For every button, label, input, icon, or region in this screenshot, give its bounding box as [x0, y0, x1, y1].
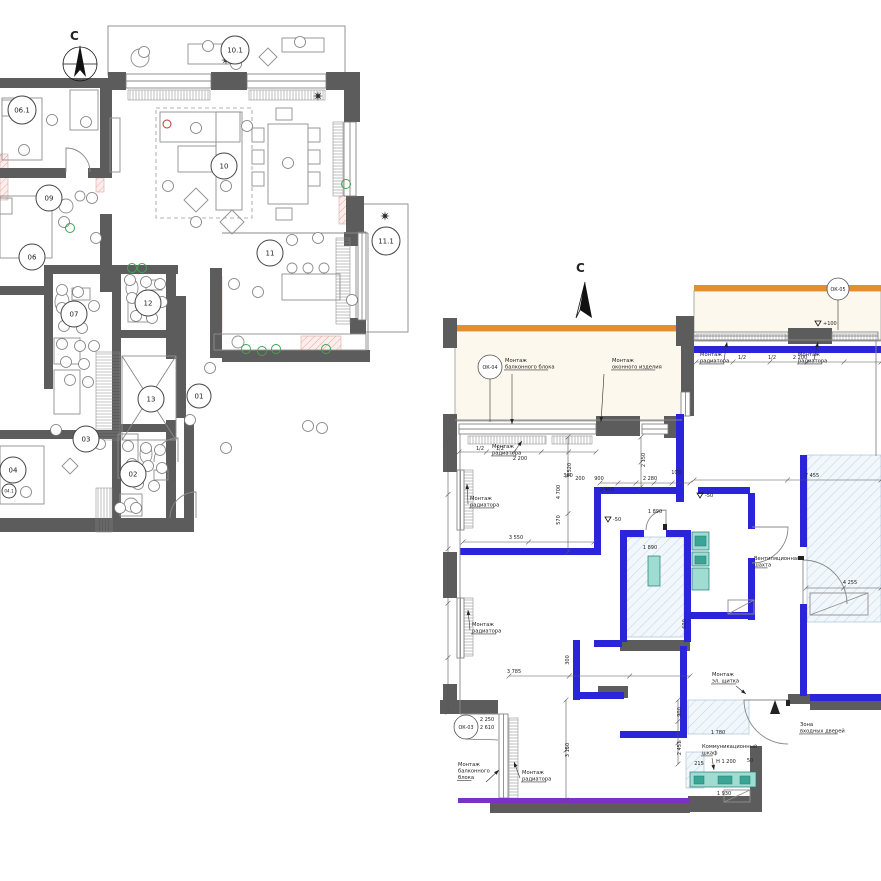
furniture-callout-circle	[139, 47, 150, 58]
furniture-callout-circle	[65, 375, 76, 386]
new-partition-wall	[620, 530, 644, 537]
dimension-label: Н 1 200	[716, 759, 736, 765]
dimension-label: 1 890	[648, 509, 662, 515]
plumbing-fixture	[692, 568, 709, 590]
dimension-label: 200	[575, 476, 585, 482]
new-partition-wall	[810, 694, 881, 701]
room-number-label: 11	[266, 250, 275, 258]
north-label: С	[576, 261, 585, 275]
dimension-label: 50	[747, 758, 753, 764]
entry-direction-arrow	[770, 700, 780, 714]
annotation-text: Зона	[800, 722, 813, 728]
furniture-callout-circle	[131, 503, 142, 514]
annotation-text: Монтаж	[712, 672, 734, 678]
annotation-text: Монтаж	[505, 358, 527, 364]
dimension-label: 1 890	[643, 545, 657, 551]
annotation-text: Монтаж	[798, 352, 820, 358]
floorplan-page: 06.10910.1101111.10607121301030404.102 2…	[0, 0, 881, 881]
furniture-callout-circle	[141, 443, 152, 454]
pink-hatch	[96, 178, 104, 192]
furniture	[276, 208, 292, 220]
dimension-label: 2 610	[480, 725, 494, 731]
radiator-comb	[336, 238, 350, 324]
wall-segment	[118, 330, 178, 338]
furniture-callout-circle	[79, 359, 90, 370]
annotation-text: радиатора	[472, 628, 501, 634]
room-number-label: 09	[45, 195, 54, 203]
furniture-callout-circle	[155, 279, 166, 290]
furniture-callout-circle	[191, 217, 202, 228]
wall-segment	[44, 265, 178, 274]
furniture-callout-circle	[317, 423, 328, 434]
wall-segment	[0, 286, 44, 295]
new-partition-wall	[748, 493, 755, 529]
annotation-text: радиатора	[700, 358, 729, 364]
furniture-callout-circle	[283, 158, 294, 169]
floorplan-canvas: 06.10910.1101111.10607121301030404.102 2…	[0, 0, 881, 881]
dimension-label: 1/2	[738, 355, 746, 361]
room-number-label: 13	[147, 396, 156, 404]
existing-wall	[440, 700, 498, 714]
existing-wall	[676, 316, 694, 346]
furniture-callout-circle	[73, 287, 84, 298]
dimension-label: 215	[694, 761, 704, 767]
green-mark-circle	[66, 224, 75, 233]
annotation-text: Коммуникационный	[702, 743, 757, 750]
new-partition-wall	[680, 646, 687, 738]
dimension-label: 4 700	[556, 485, 562, 499]
furniture-round	[303, 263, 313, 273]
armchair	[220, 210, 244, 234]
plumbing-fixture-inner	[695, 536, 706, 546]
annotation-text: балконного блока	[505, 364, 555, 370]
dimension-label: 2 250	[480, 717, 494, 723]
furniture-callout-circle	[57, 285, 68, 296]
new-partition-wall	[666, 530, 686, 537]
dimension-label: 2 450	[600, 487, 614, 493]
room-number-label: 01	[195, 393, 204, 401]
window-tag-label: ОК-05	[830, 287, 845, 293]
dimension-label: 1 780	[711, 730, 725, 736]
dimension-label: 1 930	[717, 791, 731, 797]
furniture-callout-circle	[205, 363, 216, 374]
furniture-callout-circle	[203, 41, 214, 52]
furniture-round	[75, 191, 85, 201]
room-number-label: 11.1	[378, 238, 394, 246]
window-tag-leader	[466, 739, 498, 740]
wall-segment	[44, 265, 53, 389]
leader-arrowhead	[510, 419, 514, 424]
orange-band	[694, 285, 881, 291]
dimension-label: 7 520	[567, 463, 573, 477]
furniture	[0, 198, 12, 214]
furniture-callout-circle	[125, 275, 136, 286]
annotation-text: оконного изделия	[612, 364, 662, 370]
furniture-callout-circle	[51, 425, 62, 436]
dimension-label: 1/2	[476, 446, 484, 452]
dimension-label: 600	[682, 619, 688, 629]
annotation-text: Монтаж	[522, 770, 544, 776]
new-partition-wall	[800, 604, 807, 696]
annotation-text: балконного	[458, 768, 490, 774]
furniture	[252, 150, 264, 164]
level-mark-flag	[605, 517, 611, 522]
existing-wall	[443, 414, 457, 472]
new-partition-wall	[594, 487, 601, 555]
existing-wall	[443, 318, 457, 348]
annotation-text: эл. щитка	[712, 678, 739, 684]
room-number-label: 04	[9, 467, 18, 475]
furniture-callout-circle	[185, 415, 196, 426]
new-partition-wall	[594, 640, 622, 647]
annotation-text: шахта	[754, 562, 771, 568]
wall-segment	[0, 168, 66, 178]
annotation-text: Монтаж	[458, 762, 480, 768]
new-partition-wall	[800, 455, 807, 547]
room-number-label: 07	[70, 311, 79, 319]
furniture-callout-circle	[221, 443, 232, 454]
wall-segment	[108, 72, 126, 90]
room-number-label: 10	[220, 163, 229, 171]
room-number-label: 02	[129, 471, 138, 479]
plant-icon	[313, 91, 323, 101]
new-partition-wall	[694, 346, 881, 353]
new-partition-wall	[620, 731, 682, 738]
room-number-label: 12	[144, 300, 153, 308]
room-number-label: 06	[28, 254, 37, 262]
furniture-callout-circle	[59, 217, 70, 228]
new-partition-wall	[620, 530, 627, 642]
new-partition-wall	[578, 692, 624, 699]
room-number-label: 04.1	[4, 489, 14, 494]
annotation-text: Вентиляционная	[754, 556, 800, 562]
leader-arrowhead	[741, 689, 746, 694]
room-number-label: 06.1	[14, 107, 30, 115]
furniture-callout-circle	[295, 37, 306, 48]
furniture	[252, 128, 264, 142]
wall-segment	[176, 296, 186, 418]
furniture-callout-circle	[253, 287, 264, 298]
dimension-label: 2 280	[643, 476, 657, 482]
furniture-callout-circle	[221, 181, 232, 192]
new-partition-wall	[690, 612, 750, 619]
plumbing-fixture-inner	[695, 556, 706, 564]
window-tag-label: ОК-04	[482, 365, 497, 371]
dimension-label: 2 150	[641, 453, 647, 467]
plumbing-fixture-inner	[718, 776, 732, 784]
level-mark-label: +100	[823, 321, 837, 327]
furniture	[252, 172, 264, 186]
dimension-label: 100	[671, 470, 681, 476]
furniture-callout-circle	[149, 481, 160, 492]
furniture	[308, 172, 320, 186]
annotation-text: входных дверей	[800, 727, 845, 734]
red-mark-circle	[163, 120, 171, 128]
dimension-label: 900	[594, 476, 604, 482]
annotation-text: Монтаж	[470, 496, 492, 502]
dimension-label: 3 550	[509, 535, 523, 541]
dimension-label: 1/2	[768, 355, 776, 361]
furniture-callout-circle	[229, 279, 240, 290]
leader-arrowhead	[711, 765, 715, 770]
furniture-callout-circle	[347, 295, 358, 306]
furniture	[308, 128, 320, 142]
annotation-text: радиатора	[798, 358, 827, 364]
dimension-label: 300	[565, 655, 571, 665]
wet-zone-hatch	[622, 537, 684, 637]
dimension-label: 7 455	[805, 473, 819, 479]
annotation-text: радиатора	[522, 776, 551, 782]
furniture-callout-circle	[87, 193, 98, 204]
furniture-callout-circle	[191, 123, 202, 134]
new-partition-wall	[460, 548, 596, 555]
armchair	[62, 458, 78, 474]
furniture-callout-circle	[157, 463, 168, 474]
wall-segment	[344, 72, 360, 122]
furniture-callout-circle	[75, 341, 86, 352]
furniture-callout-circle	[242, 121, 253, 132]
furniture-callout-circle	[123, 441, 134, 452]
dimension-label: 3 150	[565, 743, 571, 757]
orange-band	[455, 325, 682, 331]
annotation-text: Монтаж	[492, 444, 514, 450]
wet-zone-hatch	[688, 700, 749, 734]
wall-segment	[166, 420, 176, 530]
furniture-round	[319, 263, 329, 273]
furniture-callout-circle	[141, 277, 152, 288]
level-line-purple	[458, 798, 690, 803]
existing-wall	[810, 701, 881, 710]
wall-segment	[326, 72, 346, 90]
dimension-label: 570	[556, 515, 562, 525]
window-tag-label: ОК-03	[458, 725, 473, 731]
wall-segment	[0, 518, 184, 532]
dimension-label: 3 785	[507, 669, 521, 675]
furniture-callout-circle	[91, 233, 102, 244]
annotation-text: Монтаж	[700, 352, 722, 358]
existing-wall	[596, 416, 640, 436]
leader-arrowhead	[724, 342, 728, 347]
annotation-text: Монтаж	[612, 358, 634, 364]
door-swing	[744, 700, 788, 744]
new-partition-wall	[573, 640, 580, 700]
plumbing-fixture	[648, 556, 660, 586]
furniture-callout-circle	[115, 503, 126, 514]
furniture-round	[287, 263, 297, 273]
plant-icon	[380, 211, 390, 221]
annotation-text: блока	[458, 775, 474, 781]
furniture-callout-circle	[89, 341, 100, 352]
level-mark-label: -50	[705, 493, 713, 499]
north-label: С	[70, 29, 79, 43]
wall-segment	[88, 168, 112, 178]
furniture-callout-circle	[89, 301, 100, 312]
wall-segment	[346, 196, 364, 234]
furniture-callout-circle	[155, 445, 166, 456]
existing-wall	[620, 640, 690, 651]
furniture-callout-circle	[47, 115, 58, 126]
wall-segment	[166, 265, 176, 359]
plumbing-fixture-inner	[740, 776, 750, 784]
furniture-callout-circle	[83, 377, 94, 388]
furniture-callout-circle	[303, 421, 314, 432]
furniture-callout-circle	[287, 235, 298, 246]
room-number-label: 10.1	[227, 47, 243, 55]
leader-arrowhead	[465, 484, 469, 489]
dimension-label: 900	[677, 707, 683, 717]
room-number-label: 03	[82, 436, 91, 444]
annotation-text: радиатора	[492, 450, 521, 456]
rug	[156, 108, 252, 218]
door-leaf	[663, 524, 667, 530]
furniture	[276, 108, 292, 120]
wall-segment	[184, 416, 194, 532]
wall-segment	[100, 214, 112, 292]
wall-segment	[211, 72, 247, 90]
furniture	[282, 274, 340, 300]
wall-segment	[210, 268, 222, 358]
furniture-callout-circle	[61, 357, 72, 368]
door-swing	[66, 148, 90, 172]
wall-segment	[222, 350, 370, 362]
furniture-callout-circle	[81, 117, 92, 128]
dimension-label: 4 255	[843, 580, 857, 586]
furniture	[308, 150, 320, 164]
furniture	[178, 146, 216, 172]
dimension-label: 2 451	[677, 741, 683, 755]
furniture-callout-circle	[163, 181, 174, 192]
plumbing-fixture-inner	[694, 776, 704, 784]
furniture-callout-circle	[21, 487, 32, 498]
wall-segment	[0, 78, 108, 88]
level-mark-label: -50	[613, 517, 621, 523]
leader-arrowhead	[467, 610, 471, 615]
annotation-text: радиатора	[470, 502, 499, 508]
existing-wall	[443, 552, 457, 598]
left-furniture-plan: 06.10910.1101111.10607121301030404.102	[0, 26, 408, 532]
furniture-callout-circle	[57, 339, 68, 350]
north-needle	[74, 45, 86, 77]
door-leaf	[786, 700, 790, 706]
furniture-callout-circle	[313, 233, 324, 244]
dimension-label: 2 200	[513, 456, 527, 462]
armchair	[184, 188, 208, 212]
annotation-text: шкаф	[702, 750, 718, 756]
armchair	[259, 48, 277, 66]
leader-arrowhead	[514, 762, 517, 767]
existing-wall	[788, 328, 832, 344]
right-dimension-plan: 2 2001/21/23 5502003009002 4502 2801007 …	[440, 278, 881, 813]
furniture-callout-circle	[19, 145, 30, 156]
radiator-comb	[468, 436, 546, 444]
annotation-text: Монтаж	[472, 622, 494, 628]
